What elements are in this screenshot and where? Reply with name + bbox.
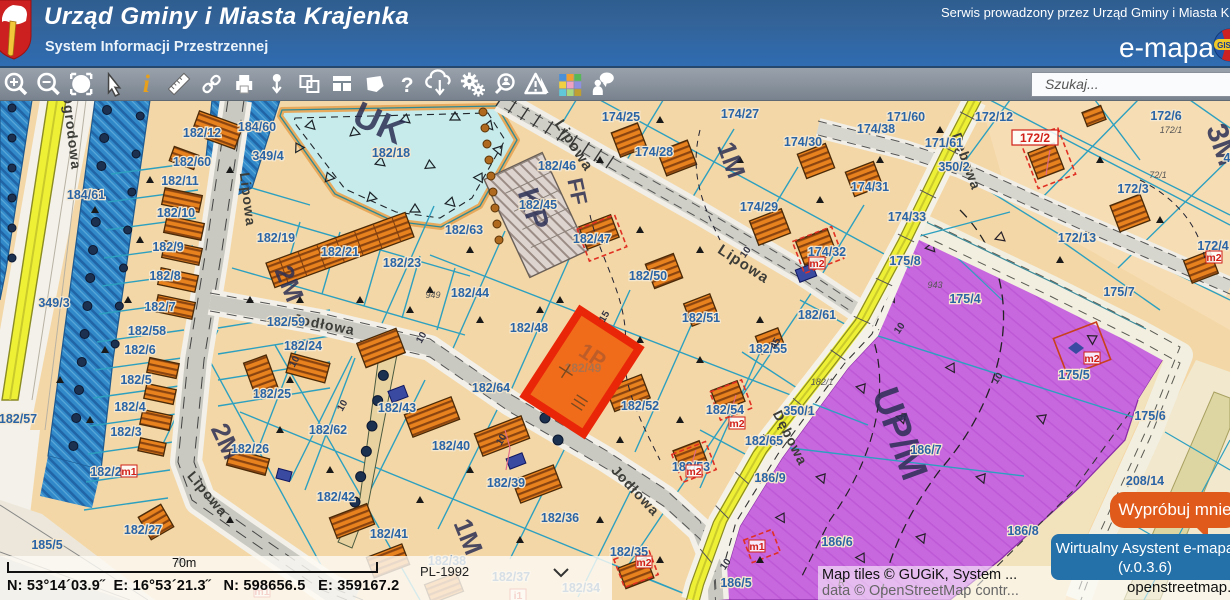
svg-text:174/29: 174/29 [740,200,778,214]
svg-text:182/45: 182/45 [519,198,557,212]
svg-text:175/6: 175/6 [1134,409,1165,423]
svg-text:172/2: 172/2 [1020,131,1050,145]
svg-text:182/61: 182/61 [798,308,836,322]
svg-text:182/12: 182/12 [183,126,221,140]
svg-text:182/64: 182/64 [472,381,510,395]
svg-text:182/24: 182/24 [284,339,322,353]
svg-text:186/5: 186/5 [720,576,751,590]
svg-text:GISON: GISON [1217,41,1230,50]
svg-text:186/7: 186/7 [910,443,941,457]
svg-text:349/4: 349/4 [252,149,283,163]
svg-text:182/40: 182/40 [432,439,470,453]
svg-text:182/1: 182/1 [811,377,834,387]
svg-text:m1: m1 [121,466,136,478]
svg-text:m2: m2 [1084,353,1099,365]
svg-text:943: 943 [927,280,942,290]
svg-text:174/38: 174/38 [857,122,895,136]
svg-text:182/50: 182/50 [629,269,667,283]
svg-text:186/6: 186/6 [821,535,852,549]
svg-text:182/19: 182/19 [257,231,295,245]
svg-text:172/6: 172/6 [1150,109,1181,123]
svg-text:182/60: 182/60 [173,155,211,169]
svg-text:182/47: 182/47 [573,232,611,246]
svg-text:m2: m2 [686,466,701,478]
svg-text:182/2: 182/2 [90,465,121,479]
svg-text:m2: m2 [1206,252,1221,264]
svg-text:182/65: 182/65 [745,434,783,448]
svg-text:172/1: 172/1 [1160,125,1183,135]
svg-text:182/36: 182/36 [541,511,579,525]
svg-text:182/39: 182/39 [487,476,525,490]
svg-text:182/41: 182/41 [370,527,408,541]
svg-text:182/52: 182/52 [621,399,659,413]
svg-text:171/61: 171/61 [925,136,963,150]
svg-text:208/14: 208/14 [1126,474,1164,488]
svg-text:182/51: 182/51 [682,311,720,325]
svg-text:174/27: 174/27 [721,107,759,121]
svg-text:182/26: 182/26 [231,442,269,456]
svg-text:?: ? [401,74,414,97]
svg-text:175/5: 175/5 [1058,368,1089,382]
svg-text:182/59: 182/59 [267,315,305,329]
svg-text:182/54: 182/54 [706,403,744,417]
svg-text:185/5: 185/5 [31,538,62,552]
svg-text:182/23: 182/23 [383,256,421,270]
svg-text:i: i [143,71,150,98]
svg-text:182/21: 182/21 [321,245,359,259]
svg-text:72/1: 72/1 [1149,170,1167,180]
svg-text:182/57: 182/57 [0,412,37,426]
svg-text:174/33: 174/33 [888,210,926,224]
svg-text:m2: m2 [809,258,824,270]
svg-text:m1: m1 [749,541,764,553]
svg-text:349/3: 349/3 [38,296,69,310]
svg-text:182/7: 182/7 [144,300,175,314]
svg-text:182/9: 182/9 [152,240,183,254]
svg-text:182/44: 182/44 [451,286,489,300]
svg-text:182/49: 182/49 [565,361,602,375]
svg-text:184/60: 184/60 [238,120,276,134]
svg-text:182/43: 182/43 [378,401,416,415]
svg-text:182/48: 182/48 [510,321,548,335]
svg-text:182/8: 182/8 [149,269,180,283]
svg-text:4: 4 [1224,151,1230,165]
svg-text:174/30: 174/30 [784,135,822,149]
svg-text:182/46: 182/46 [538,159,576,173]
svg-text:184/61: 184/61 [67,188,105,202]
svg-text:174/28: 174/28 [635,145,673,159]
svg-text:m2: m2 [729,418,744,430]
svg-text:182/63: 182/63 [445,223,483,237]
svg-text:182/3: 182/3 [110,425,141,439]
svg-text:182/11: 182/11 [161,174,199,188]
svg-text:182/5: 182/5 [120,373,151,387]
svg-text:m2: m2 [636,557,651,569]
svg-text:175/8: 175/8 [889,254,920,268]
svg-text:182/4: 182/4 [114,400,145,414]
svg-text:182/25: 182/25 [253,387,291,401]
svg-text:172/13: 172/13 [1058,231,1096,245]
svg-text:350/2: 350/2 [938,160,969,174]
svg-text:182/27: 182/27 [124,523,162,537]
svg-text:182/58: 182/58 [128,324,166,338]
svg-text:175/4: 175/4 [949,292,980,306]
svg-text:174/25: 174/25 [602,110,640,124]
svg-text:949: 949 [425,290,440,300]
svg-text:182/10: 182/10 [157,206,195,220]
svg-text:182/6: 182/6 [124,343,155,357]
svg-text:172/3: 172/3 [1117,182,1148,196]
svg-text:350/1: 350/1 [783,404,814,418]
svg-text:182/62: 182/62 [309,423,347,437]
svg-text:175/7: 175/7 [1103,285,1134,299]
svg-text:182/18: 182/18 [372,146,410,160]
svg-text:186/9: 186/9 [754,471,785,485]
svg-text:174/31: 174/31 [851,180,889,194]
svg-text:186/8: 186/8 [1007,524,1038,538]
svg-text:172/12: 172/12 [975,110,1013,124]
svg-text:182/42: 182/42 [317,490,355,504]
